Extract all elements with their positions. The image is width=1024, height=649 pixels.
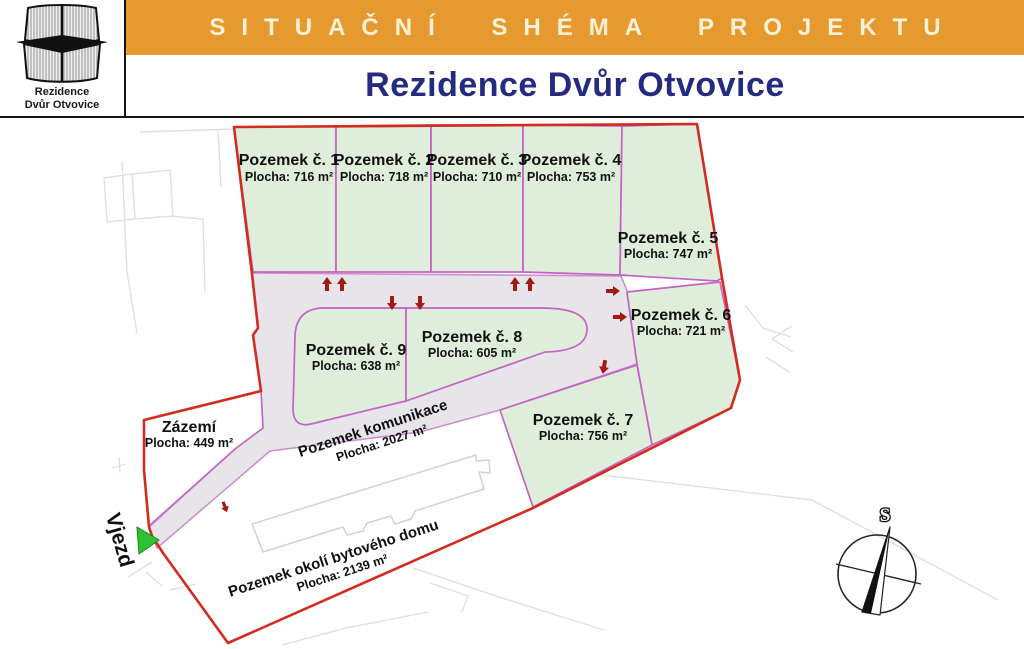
plot-8-area: Plocha: 605 m²	[428, 346, 516, 360]
plot-7-area: Plocha: 756 m²	[539, 429, 627, 443]
plot-9-area: Plocha: 638 m²	[312, 359, 400, 373]
plot-6-label: Pozemek č. 6	[631, 307, 732, 324]
site-plan-map: Pozemek č. 1 Plocha: 716 m² Pozemek č. 2…	[0, 118, 1024, 649]
plot-3-label: Pozemek č. 3	[427, 152, 528, 169]
plot-7-label: Pozemek č. 7	[533, 412, 634, 429]
plot-5-label: Pozemek č. 5	[618, 230, 719, 247]
plot-4-area: Plocha: 753 m²	[527, 170, 615, 184]
company-logo: Rezidence Dvůr Otvovice	[0, 0, 126, 116]
plot-2-area: Plocha: 718 m²	[340, 170, 428, 184]
plot-1-area: Plocha: 716 m²	[245, 170, 333, 184]
page-header: Rezidence Dvůr Otvovice SITUAČNÍ SHÉMA P…	[0, 0, 1024, 118]
project-title: Rezidence Dvůr Otvovice	[365, 66, 785, 105]
compass-rose: S	[836, 505, 921, 615]
plot-2-label: Pozemek č. 2	[334, 152, 435, 169]
compass-north-label: S	[880, 505, 891, 526]
plot-4-label: Pozemek č. 4	[521, 152, 622, 169]
logo-line1: Rezidence	[0, 86, 124, 99]
plot-3-area: Plocha: 710 m²	[433, 170, 521, 184]
plot-2-region	[336, 125, 431, 272]
project-title-band: Rezidence Dvůr Otvovice	[126, 55, 1024, 116]
plot-4-region	[523, 125, 622, 275]
zazemi-label: Zázemí	[162, 419, 217, 436]
schema-title: SITUAČNÍ SHÉMA PROJEKTU	[193, 14, 956, 42]
plot-1-label: Pozemek č. 1	[239, 152, 340, 169]
entrance-label: Vjezd	[101, 511, 138, 570]
zazemi-area: Plocha: 449 m²	[145, 436, 233, 450]
arrow-down-icon	[219, 500, 230, 513]
logo-mark-icon	[0, 0, 124, 88]
plot-5-area: Plocha: 747 m²	[624, 247, 712, 261]
plot-8-label: Pozemek č. 8	[422, 329, 523, 346]
schema-title-bar: SITUAČNÍ SHÉMA PROJEKTU	[126, 0, 1024, 55]
plot-9-label: Pozemek č. 9	[306, 342, 407, 359]
logo-line2: Dvůr Otvovice	[0, 99, 124, 112]
plot-6-area: Plocha: 721 m²	[637, 324, 725, 338]
plot-3-region	[431, 125, 523, 272]
